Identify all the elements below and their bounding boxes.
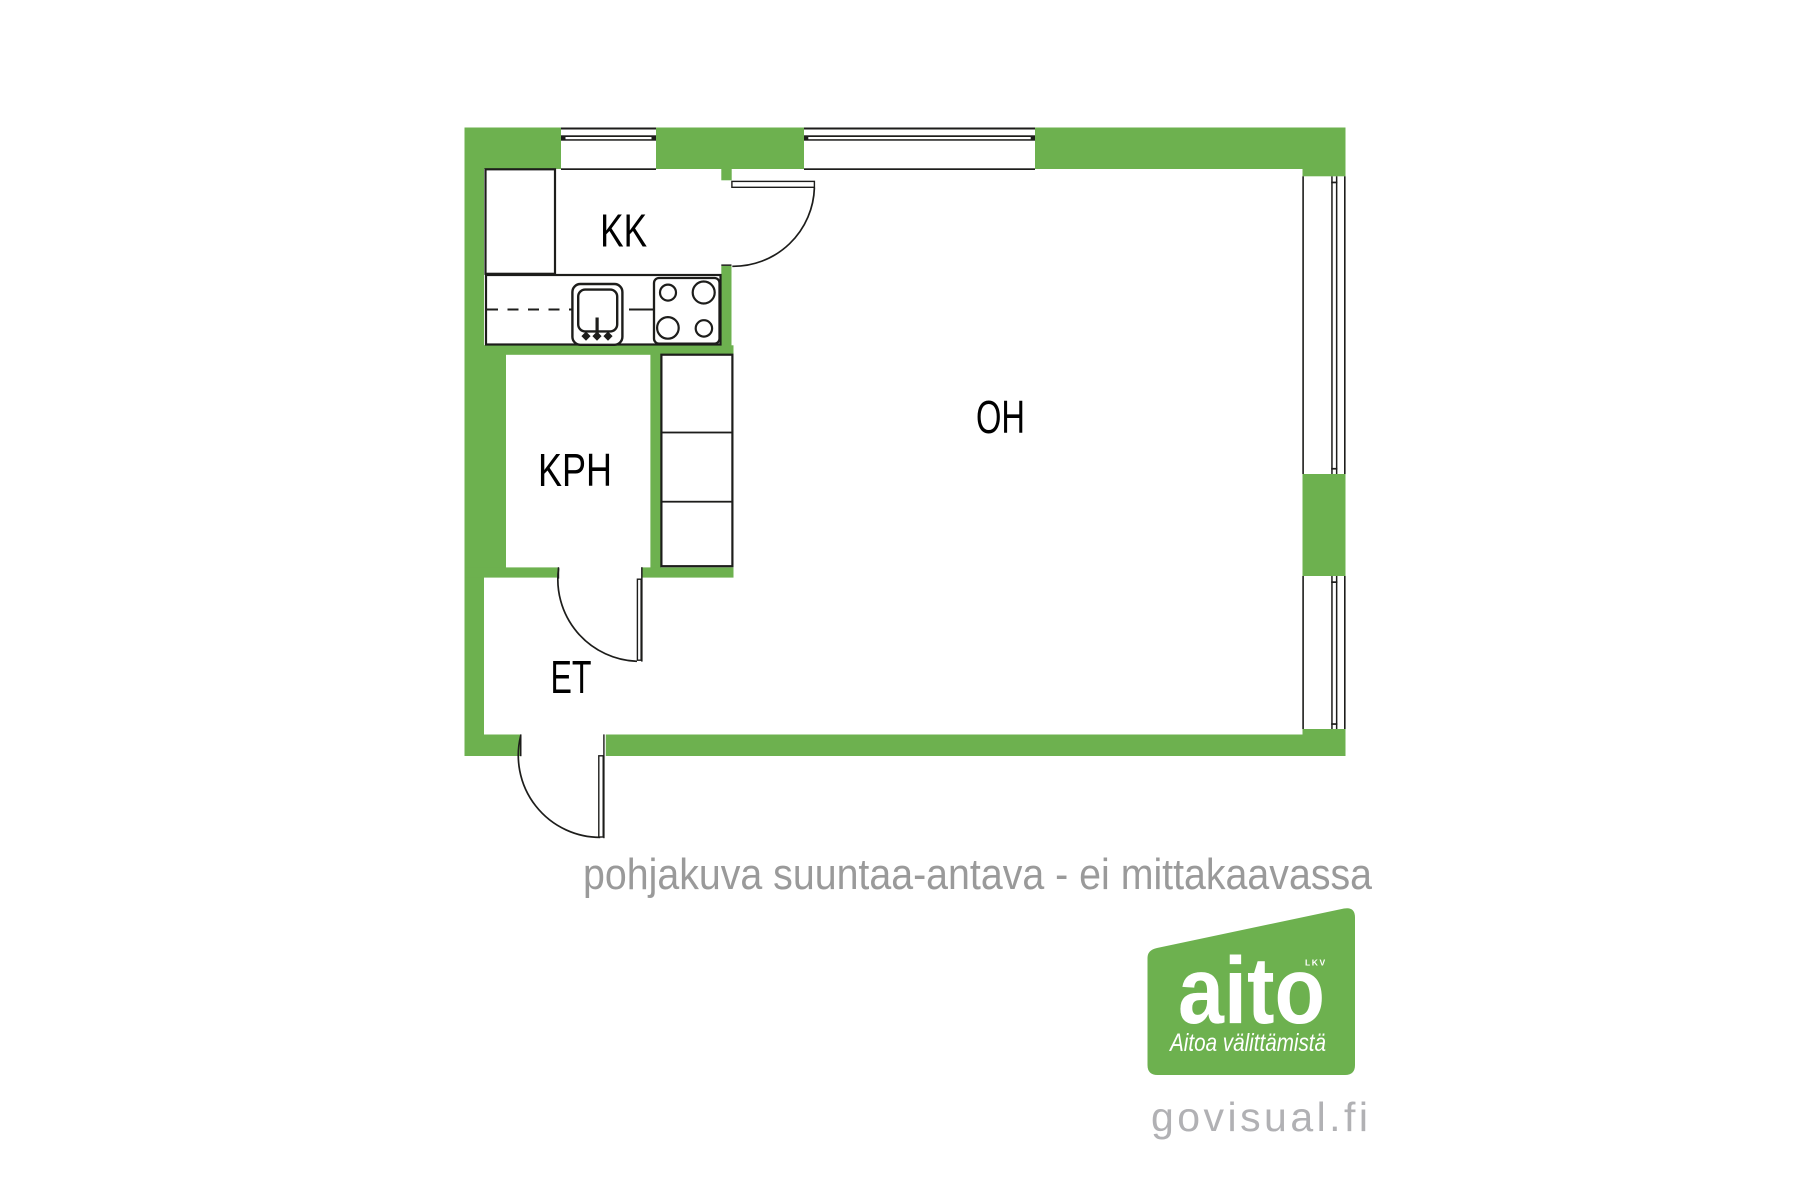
svg-text:govisual.fi: govisual.fi: [1151, 1094, 1368, 1140]
svg-text:KPH: KPH: [538, 444, 612, 496]
svg-text:OH: OH: [976, 391, 1025, 443]
svg-text:LKV: LKV: [1305, 957, 1327, 967]
svg-text:KK: KK: [600, 205, 647, 257]
svg-text:Aitoa välittämistä: Aitoa välittämistä: [1168, 1029, 1326, 1057]
svg-text:pohjakuva suuntaa-antava - ei: pohjakuva suuntaa-antava - ei mittakaava…: [583, 850, 1372, 899]
svg-text:ET: ET: [551, 651, 592, 703]
